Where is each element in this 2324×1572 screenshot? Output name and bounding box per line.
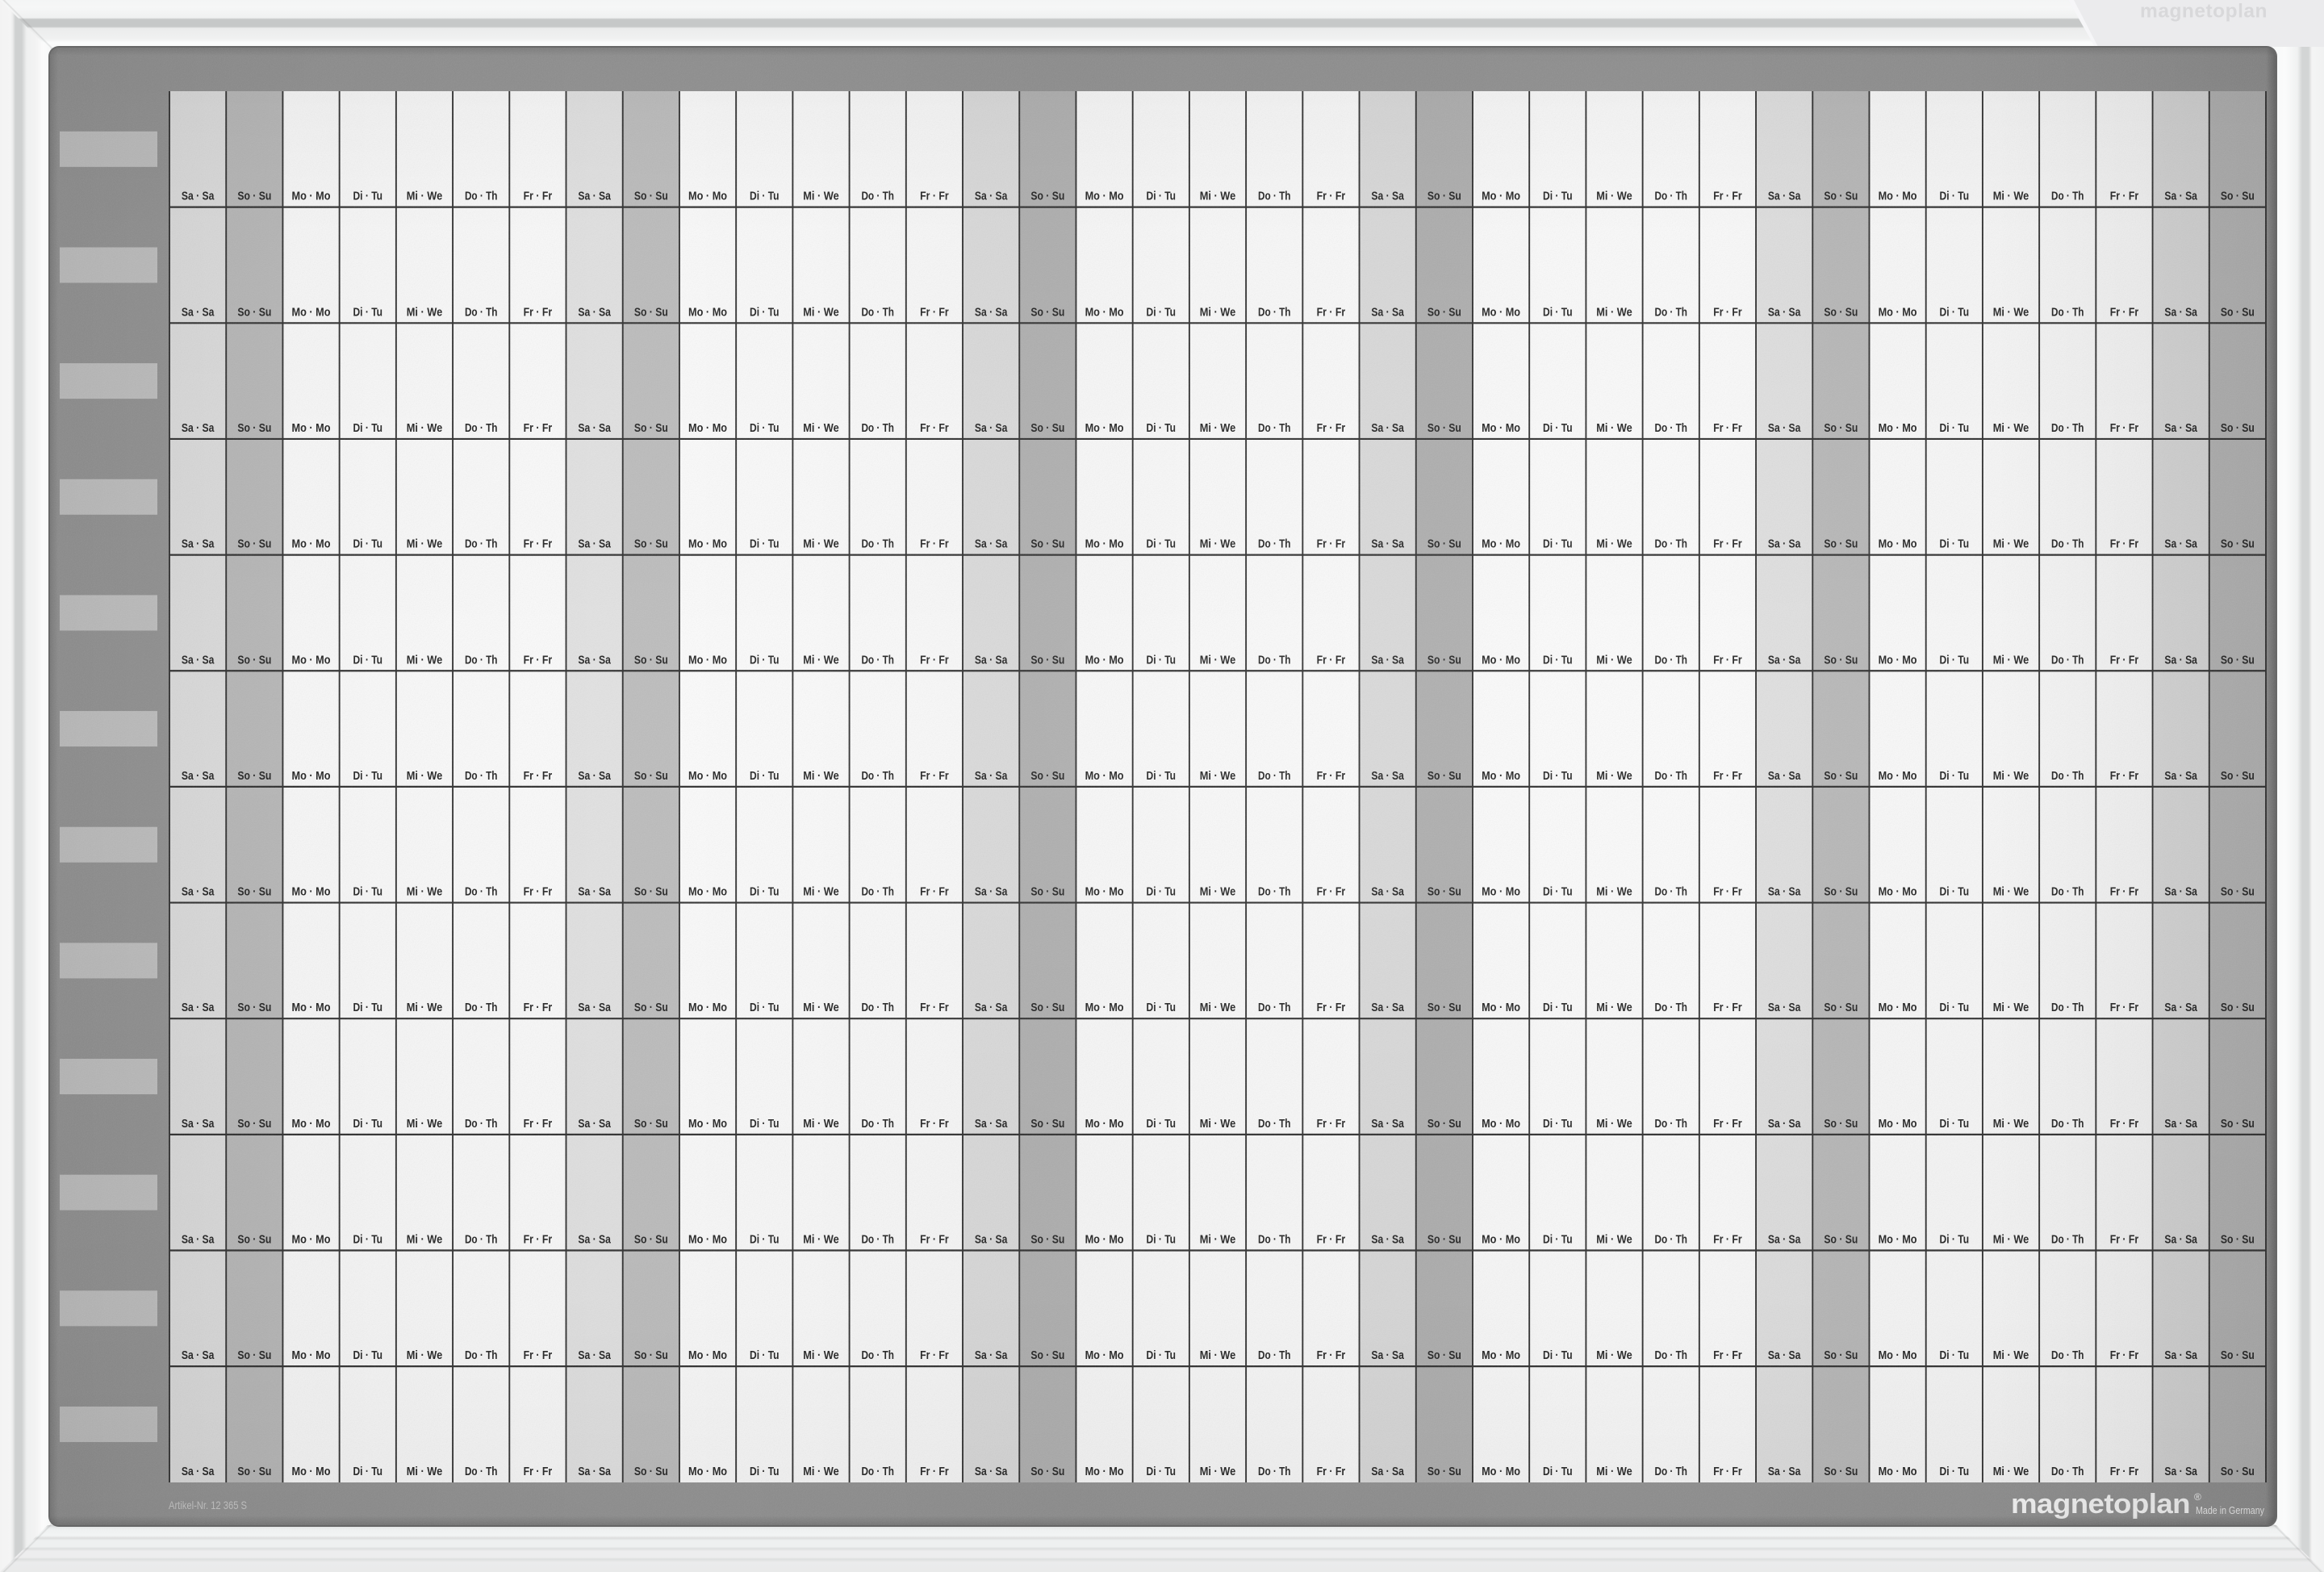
svg-text:magnetoplan: magnetoplan <box>2140 1 2268 23</box>
